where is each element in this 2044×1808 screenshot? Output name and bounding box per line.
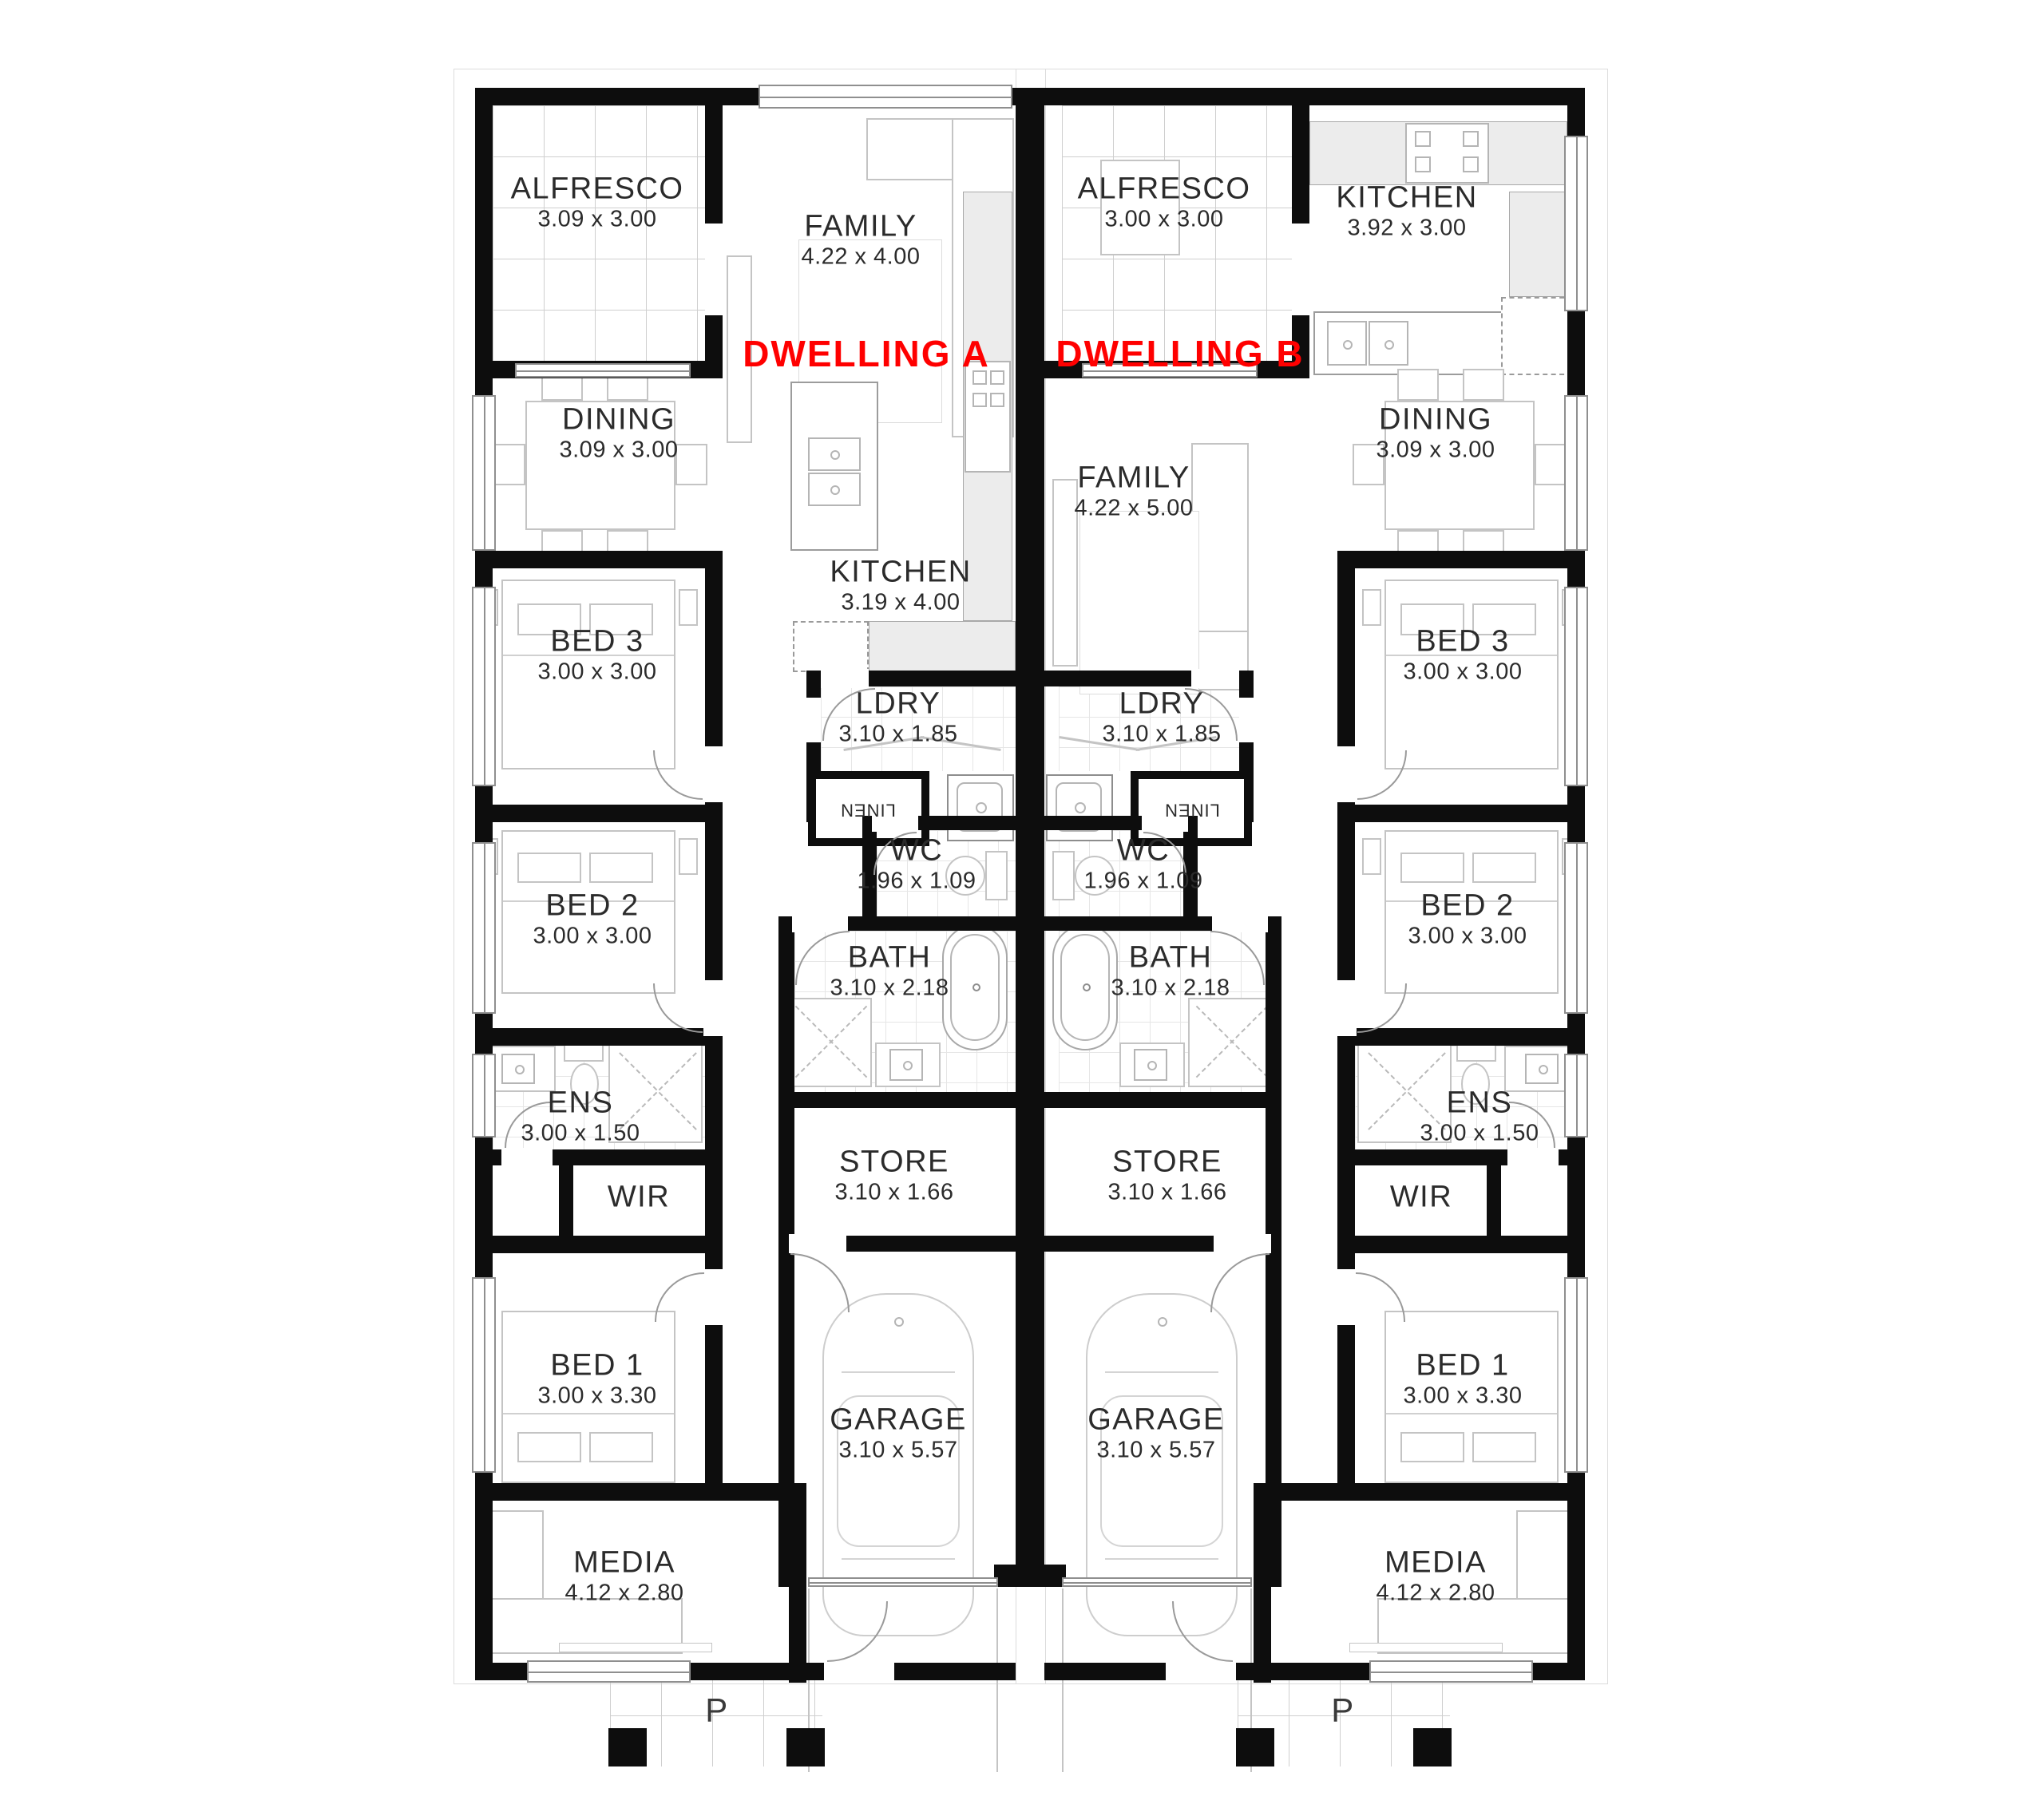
- shower: [1188, 998, 1273, 1087]
- door-opening: [789, 1234, 846, 1253]
- porch-post: [1413, 1728, 1452, 1766]
- window: [472, 587, 496, 786]
- wall-segment: [1337, 1236, 1585, 1253]
- window: [1564, 1277, 1588, 1473]
- window: [472, 1277, 496, 1473]
- door-opening: [1507, 1148, 1559, 1167]
- driveway-edge: [996, 1588, 998, 1772]
- driveway-edge: [1062, 1588, 1064, 1772]
- wall-segment: [475, 805, 723, 822]
- fridge-space: [793, 621, 869, 672]
- kitchen-sink: [808, 437, 861, 471]
- wall-segment: [894, 1663, 1016, 1680]
- rug: [1079, 511, 1199, 694]
- room-label-ens-b: ENS 3.00 x 1.50: [1420, 1086, 1539, 1145]
- party-wall: [1016, 88, 1044, 1587]
- toilet: [1456, 1044, 1496, 1062]
- wall-segment: [1254, 1483, 1585, 1501]
- wall-segment: [1044, 1663, 1166, 1680]
- door-opening: [1336, 746, 1357, 802]
- bedside-table: [1362, 589, 1381, 626]
- room-label-porch-b: P: [1331, 1691, 1355, 1728]
- kitchen-sink: [1327, 321, 1367, 366]
- wall-segment: [778, 1092, 1016, 1108]
- door-opening: [1214, 1234, 1271, 1253]
- wall-segment: [1044, 88, 1292, 105]
- garage-door: [1062, 1577, 1252, 1587]
- room-label-alfresco-b: ALFRESCO 3.00 x 3.00: [1078, 172, 1251, 231]
- kitchen-sink: [808, 473, 861, 506]
- room-label-store-a: STORE 3.10 x 1.66: [835, 1145, 954, 1205]
- window: [759, 85, 1012, 109]
- wall-segment: [475, 88, 723, 105]
- wall-segment: [475, 1236, 723, 1253]
- door-opening: [1171, 1661, 1234, 1682]
- door-opening: [1191, 669, 1239, 688]
- wall-segment: [1337, 551, 1585, 568]
- kitchen-bench: [1509, 192, 1567, 297]
- chair: [1535, 444, 1567, 485]
- kitchen-bench: [869, 621, 1016, 672]
- door-opening: [703, 1269, 724, 1325]
- chair: [1463, 369, 1504, 401]
- window: [527, 1660, 691, 1683]
- door-opening: [703, 980, 724, 1036]
- window: [472, 395, 496, 551]
- porch-post: [1236, 1728, 1274, 1766]
- cooktop: [1405, 123, 1489, 184]
- room-label-bath-a: BATH 3.10 x 2.18: [830, 940, 949, 1000]
- kitchen-sink: [1369, 321, 1408, 366]
- room-label-porch-a: P: [705, 1691, 729, 1728]
- cooktop: [965, 361, 1011, 473]
- wall-segment: [1254, 1565, 1281, 1587]
- wall-segment: [705, 88, 723, 224]
- room-label-bed1-a: BED 1 3.00 x 3.30: [538, 1348, 657, 1408]
- laundry-trough: [1046, 774, 1113, 841]
- bedside-table: [679, 838, 698, 875]
- toilet: [564, 1044, 604, 1062]
- wall-segment: [705, 315, 723, 378]
- room-label-bed1-b: BED 1 3.00 x 3.30: [1404, 1348, 1523, 1408]
- room-label-alfresco-a: ALFRESCO 3.09 x 3.00: [511, 172, 684, 231]
- door-opening: [703, 746, 724, 802]
- window: [515, 363, 691, 378]
- basin: [1134, 1049, 1167, 1081]
- window: [472, 842, 496, 1014]
- bathtub: [1052, 924, 1118, 1050]
- shower: [787, 998, 872, 1087]
- room-label-kitchen-b: KITCHEN 3.92 x 3.00: [1336, 180, 1477, 240]
- basin: [1525, 1054, 1559, 1084]
- door-opening: [792, 915, 848, 932]
- wall-segment: [475, 1028, 723, 1046]
- tv-unit: [559, 1643, 712, 1652]
- room-label-family-b: FAMILY 4.22 x 5.00: [1075, 461, 1194, 520]
- window: [1564, 136, 1588, 311]
- window: [1564, 842, 1588, 1014]
- garage-door: [808, 1577, 998, 1587]
- dwelling-a-label: DWELLING A: [743, 332, 990, 375]
- room-label-family-a: FAMILY 4.22 x 4.00: [802, 209, 921, 269]
- wall-segment: [778, 1565, 806, 1587]
- room-label-ldry-b: LDRY 3.10 x 1.85: [1103, 686, 1222, 746]
- wall-segment: [806, 686, 821, 698]
- wall-segment: [1337, 805, 1585, 822]
- room-label-bed2-b: BED 2 3.00 x 3.00: [1408, 888, 1527, 948]
- alfresco-floor-a: [493, 105, 705, 361]
- wall-segment: [1337, 1028, 1585, 1046]
- room-label-linen-b: LINEN: [1164, 800, 1220, 820]
- chair: [675, 444, 707, 485]
- room-label-wir-b: WIR: [1390, 1181, 1452, 1215]
- room-label-dining-a: DINING 3.09 x 3.00: [560, 402, 679, 462]
- wall-segment: [1239, 686, 1254, 698]
- toilet: [985, 851, 1008, 900]
- dwelling-b-label: DWELLING B: [1056, 332, 1304, 375]
- room-label-store-b: STORE 3.10 x 1.66: [1108, 1145, 1227, 1205]
- chair: [493, 444, 525, 485]
- room-label-bed2-a: BED 2 3.00 x 3.00: [533, 888, 652, 948]
- laundry-trough: [947, 774, 1014, 841]
- toilet: [1052, 851, 1075, 900]
- door-opening: [501, 1148, 553, 1167]
- room-label-linen-a: LINEN: [840, 800, 896, 820]
- room-label-ens-a: ENS 3.00 x 1.50: [521, 1086, 640, 1145]
- door-opening: [1336, 980, 1357, 1036]
- floor-plan: DWELLING A ALFRESCO 3.09 x 3.00 FAMILY 4…: [0, 0, 2044, 1808]
- window: [472, 1054, 496, 1137]
- bedside-table: [1362, 838, 1381, 875]
- window: [1564, 1054, 1588, 1137]
- room-label-wir-a: WIR: [608, 1181, 670, 1215]
- wall-segment: [559, 1149, 573, 1239]
- door-opening: [1336, 1269, 1357, 1325]
- room-label-garage-b: GARAGE 3.10 x 5.57: [1087, 1402, 1225, 1462]
- room-label-dining-b: DINING 3.09 x 3.00: [1377, 402, 1495, 462]
- porch-post: [786, 1728, 825, 1766]
- room-label-media-a: MEDIA 4.12 x 2.80: [565, 1545, 684, 1605]
- room-label-garage-a: GARAGE 3.10 x 5.57: [830, 1402, 967, 1462]
- room-label-wc-a: WC 1.96 x 1.09: [858, 833, 976, 893]
- door-opening: [821, 669, 869, 688]
- chair: [1397, 369, 1439, 401]
- window: [1564, 587, 1588, 786]
- wall-segment: [475, 551, 723, 568]
- basin: [501, 1054, 535, 1084]
- door-opening: [826, 1661, 889, 1682]
- room-label-wc-b: WC 1.96 x 1.09: [1084, 833, 1203, 893]
- bathtub: [942, 924, 1008, 1050]
- room-label-media-b: MEDIA 4.12 x 2.80: [1377, 1545, 1495, 1605]
- wall-segment: [475, 1483, 806, 1501]
- window: [1564, 395, 1588, 551]
- door-opening: [1212, 915, 1268, 932]
- wall-segment: [1292, 88, 1567, 105]
- bedside-table: [679, 589, 698, 626]
- window: [1369, 1660, 1533, 1683]
- room-label-bed3-b: BED 3 3.00 x 3.00: [1404, 624, 1523, 684]
- wall-segment: [1292, 88, 1309, 224]
- room-label-kitchen-a: KITCHEN 3.19 x 4.00: [830, 555, 971, 615]
- room-label-ldry-a: LDRY 3.10 x 1.85: [839, 686, 958, 746]
- wall-segment: [1044, 1092, 1281, 1108]
- tv-unit: [1349, 1643, 1503, 1652]
- room-label-bath-b: BATH 3.10 x 2.18: [1111, 940, 1230, 1000]
- room-label-bed3-a: BED 3 3.00 x 3.00: [538, 624, 657, 684]
- wall-segment: [1487, 1149, 1501, 1239]
- porch-post: [608, 1728, 647, 1766]
- basin: [889, 1049, 923, 1081]
